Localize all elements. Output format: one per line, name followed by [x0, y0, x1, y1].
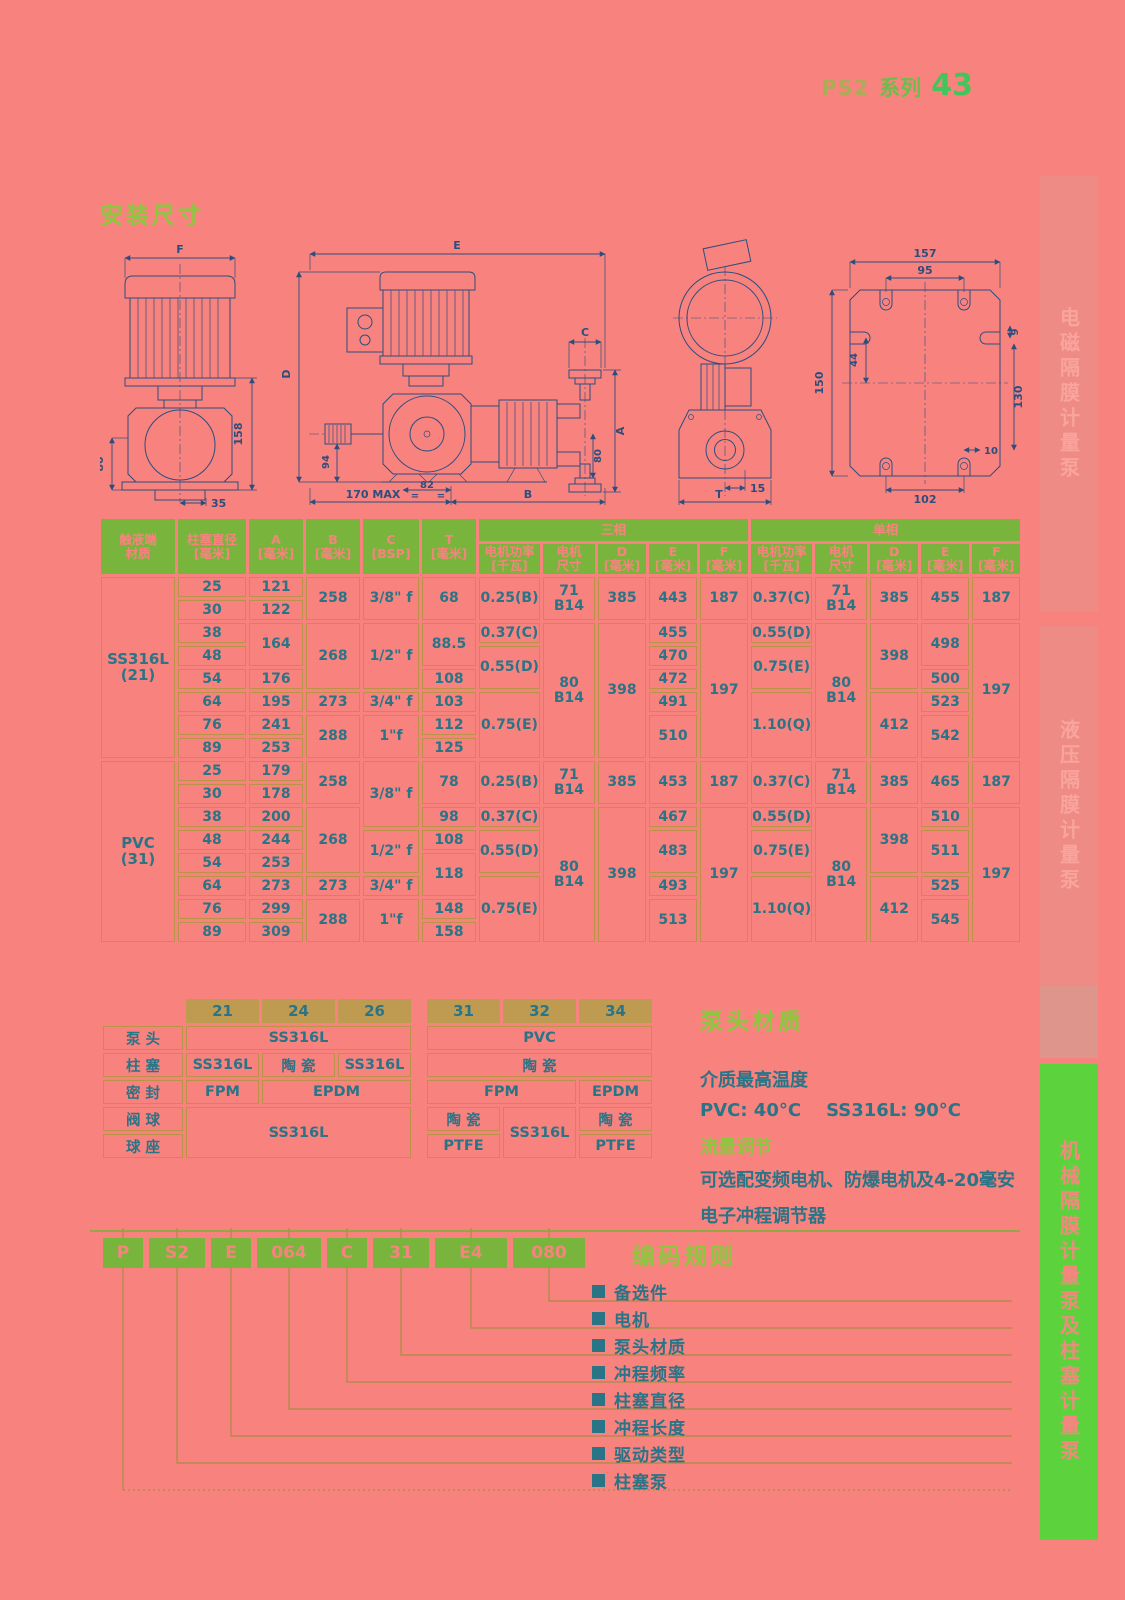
- front-view-drawing: F 158 80 35: [100, 243, 257, 510]
- table-cell: SS316L (21): [101, 577, 175, 758]
- table-cell: 71 B14: [543, 577, 595, 620]
- table-cell: 25: [178, 577, 246, 597]
- table-cell: 0.55(D): [751, 807, 812, 827]
- table-cell: 54: [178, 669, 246, 689]
- table-cell: 511: [921, 830, 969, 873]
- square-bullet-icon: [592, 1393, 605, 1406]
- table-cell: 258: [306, 761, 360, 804]
- table-cell: [414, 1026, 424, 1050]
- table-cell: 195: [249, 692, 303, 712]
- table-cell: 3/8" f: [363, 761, 419, 827]
- table-cell: 64: [178, 692, 246, 712]
- table-cell: 187: [972, 761, 1020, 804]
- table-cell: 273: [306, 876, 360, 896]
- legend-label: 备选件: [614, 1279, 668, 1304]
- table-cell: 455: [921, 577, 969, 620]
- header-cell: 21: [186, 999, 259, 1023]
- table-cell: 80 B14: [543, 807, 595, 942]
- table-cell: 76: [178, 715, 246, 735]
- code-segment: C: [327, 1238, 367, 1268]
- table-cell: 241: [249, 715, 303, 735]
- table-cell: 158: [422, 922, 476, 942]
- series-code: PS2: [821, 76, 869, 100]
- table-cell: FPM: [186, 1080, 259, 1104]
- equal-mark: =: [411, 491, 419, 502]
- header-cell: C [BSP]: [363, 519, 419, 574]
- table-cell: [414, 1053, 424, 1077]
- dim-label: 80: [593, 449, 604, 463]
- dim-label: T: [715, 488, 723, 501]
- table-cell: 472: [649, 669, 697, 689]
- header-cell: 31: [427, 999, 500, 1023]
- legend-label: 驱动类型: [614, 1441, 686, 1466]
- header-cell: 单相: [751, 519, 1020, 541]
- header-cell: 触液端 材质: [101, 519, 175, 574]
- catalog-page: PS2 系列 43 安装尺寸 F 1: [0, 0, 1125, 1600]
- dim-label: 15: [750, 482, 765, 495]
- table-cell: 68: [422, 577, 476, 620]
- header-cell: E [毫米]: [921, 544, 969, 574]
- base-plate-drawing: 157 95 150 44 9 130 10 102: [813, 247, 1025, 506]
- table-cell: 64: [178, 876, 246, 896]
- table-cell: 30: [178, 600, 246, 620]
- table-cell: 108: [422, 669, 476, 689]
- flow-adjust-line1: 可选配变频电机、防爆电机及4-20毫安: [700, 1167, 1040, 1195]
- table-cell: 510: [921, 807, 969, 827]
- sidebar-tab-label: 机械隔膜计量泵及柱塞计量泵: [1055, 1140, 1084, 1465]
- header-cell: 24: [262, 999, 335, 1023]
- square-bullet-icon: [592, 1285, 605, 1298]
- table-cell: 187: [972, 577, 1020, 620]
- coding-legend: 备选件 电机 泵头材质 冲程频率 柱塞直径 冲程长度 驱动类型 柱塞泵: [592, 1278, 686, 1494]
- table-cell: 253: [249, 853, 303, 873]
- table-cell: 253: [249, 738, 303, 758]
- coding-connector-lines: [90, 1225, 1020, 1515]
- table-cell: EPDM: [262, 1080, 411, 1104]
- table-cell: 0.55(D): [751, 623, 812, 643]
- side-view-drawing: E D 94: [280, 239, 627, 505]
- header-cell: [414, 999, 424, 1023]
- coding-rule-title: 编码规则: [632, 1237, 736, 1271]
- table-cell: [414, 1080, 424, 1104]
- dim-label: 158: [232, 423, 245, 446]
- table-cell: 球 座: [103, 1134, 183, 1158]
- table-cell: 1/2" f: [363, 623, 419, 689]
- legend-item: 冲程频率: [592, 1359, 686, 1386]
- header-cell: D [毫米]: [870, 544, 918, 574]
- table-cell: 385: [598, 761, 646, 804]
- table-cell: 288: [306, 899, 360, 942]
- table-cell: 89: [178, 922, 246, 942]
- code-segment: 064: [257, 1238, 321, 1268]
- table-cell: 0.55(D): [479, 646, 540, 689]
- flow-adjust-title: 流量调节: [700, 1133, 1040, 1159]
- table-cell: SS316L: [186, 1053, 259, 1077]
- table-cell: 148: [422, 899, 476, 919]
- header-cell: F [毫米]: [972, 544, 1020, 574]
- table-cell: 1"f: [363, 715, 419, 758]
- table-cell: 1"f: [363, 899, 419, 942]
- square-bullet-icon: [592, 1420, 605, 1433]
- code-boxes: P S2 E 064 C 31 E4 080: [103, 1238, 585, 1268]
- dim-label: 10: [984, 446, 998, 457]
- table-cell: 密 封: [103, 1080, 183, 1104]
- max-temp-title: 介质最高温度: [700, 1066, 1040, 1092]
- table-cell: 122: [249, 600, 303, 620]
- table-cell: 48: [178, 830, 246, 850]
- table-cell: 244: [249, 830, 303, 850]
- table-cell: 48: [178, 646, 246, 666]
- code-segment: 31: [373, 1238, 429, 1268]
- table-cell: 491: [649, 692, 697, 712]
- table-cell: 513: [649, 899, 697, 942]
- table-cell: 179: [249, 761, 303, 781]
- table-cell: 25: [178, 761, 246, 781]
- table-cell: 泵 头: [103, 1026, 183, 1050]
- table-cell: 103: [422, 692, 476, 712]
- page-header: PS2 系列 43: [821, 68, 973, 103]
- dim-label: 82: [420, 480, 434, 491]
- material-table: 212426313234泵 头SS316LPVC柱 塞SS316L陶 瓷SS31…: [100, 996, 655, 1161]
- table-cell: 71 B14: [543, 761, 595, 804]
- table-cell: 0.75(E): [479, 876, 540, 942]
- table-cell: 0.37(C): [751, 577, 812, 620]
- table-cell: 545: [921, 899, 969, 942]
- table-cell: 0.37(C): [479, 807, 540, 827]
- table-cell: 398: [870, 807, 918, 873]
- header-cell: 电机功率 [千瓦]: [479, 544, 540, 574]
- table-cell: 510: [649, 715, 697, 758]
- code-segment: E4: [435, 1238, 507, 1268]
- code-segment: E: [211, 1238, 251, 1268]
- header-cell: [103, 999, 183, 1023]
- table-cell: 525: [921, 876, 969, 896]
- header-cell: 26: [338, 999, 411, 1023]
- table-cell: 385: [598, 577, 646, 620]
- legend-label: 泵头材质: [614, 1333, 686, 1358]
- dim-label: 94: [321, 455, 332, 469]
- installation-drawings: F 158 80 35 E: [100, 238, 1030, 510]
- table-cell: 71 B14: [815, 577, 867, 620]
- sidebar-tab-electromagnetic: 电磁隔膜计量泵: [1040, 176, 1098, 612]
- header-cell: B [毫米]: [306, 519, 360, 574]
- table-cell: 0.25(B): [479, 577, 540, 620]
- table-cell: 0.75(E): [751, 830, 812, 873]
- sidebar-tab-hydraulic: 液压隔膜计量泵: [1040, 626, 1098, 986]
- dim-label: D: [280, 369, 293, 378]
- table-cell: FPM: [427, 1080, 576, 1104]
- legend-label: 柱塞泵: [614, 1468, 668, 1493]
- table-cell: 273: [249, 876, 303, 896]
- header-cell: E [毫米]: [649, 544, 697, 574]
- table-cell: 71 B14: [815, 761, 867, 804]
- table-cell: 385: [870, 577, 918, 620]
- table-cell: 197: [700, 623, 748, 758]
- table-cell: 阀 球: [103, 1107, 183, 1131]
- table-cell: 0.37(C): [479, 623, 540, 643]
- table-cell: 3/8" f: [363, 577, 419, 620]
- page-number: 43: [931, 68, 973, 103]
- legend-label: 冲程长度: [614, 1414, 686, 1439]
- table-cell: 88.5: [422, 623, 476, 666]
- table-cell: 陶 瓷: [262, 1053, 335, 1077]
- table-cell: 299: [249, 899, 303, 919]
- table-cell: [414, 1107, 424, 1158]
- code-segment: P: [103, 1238, 143, 1268]
- sidebar-tab-mechanical: 机械隔膜计量泵及柱塞计量泵: [1040, 1064, 1098, 1540]
- table-cell: 1/2" f: [363, 830, 419, 873]
- table-cell: 1.10(Q): [751, 692, 812, 758]
- table-cell: 0.75(E): [751, 646, 812, 689]
- header-cell: 电机 尺寸: [815, 544, 867, 574]
- equal-mark: =: [437, 491, 445, 502]
- table-cell: 80 B14: [543, 623, 595, 758]
- legend-item: 驱动类型: [592, 1440, 686, 1467]
- table-cell: 陶 瓷: [427, 1107, 500, 1131]
- header-cell: 电机 尺寸: [543, 544, 595, 574]
- table-cell: 80 B14: [815, 623, 867, 758]
- dim-label: C: [581, 326, 589, 339]
- table-cell: 523: [921, 692, 969, 712]
- table-cell: 498: [921, 623, 969, 666]
- dim-label: 44: [849, 353, 860, 367]
- coding-section: P S2 E 064 C 31 E4 080 编码规则 备选件 电机 泵头材质 …: [0, 1225, 1125, 1515]
- table-cell: 125: [422, 738, 476, 758]
- dim-label: B: [524, 488, 532, 501]
- dim-label: 130: [1012, 385, 1025, 408]
- table-cell: 309: [249, 922, 303, 942]
- header-cell: 32: [503, 999, 576, 1023]
- square-bullet-icon: [592, 1366, 605, 1379]
- table-cell: 200: [249, 807, 303, 827]
- header-cell: 三相: [479, 519, 748, 541]
- table-cell: 385: [870, 761, 918, 804]
- header-cell: D [毫米]: [598, 544, 646, 574]
- legend-label: 冲程频率: [614, 1360, 686, 1385]
- table-cell: 0.37(C): [751, 761, 812, 804]
- table-cell: 3/4" f: [363, 692, 419, 712]
- series-word: 系列: [879, 72, 921, 102]
- table-cell: 76: [178, 899, 246, 919]
- table-cell: 467: [649, 807, 697, 827]
- code-segment: 080: [513, 1238, 585, 1268]
- table-cell: 500: [921, 669, 969, 689]
- dim-label: 150: [813, 371, 826, 394]
- dim-label: 80: [100, 456, 106, 472]
- dim-label: F: [176, 243, 184, 256]
- table-cell: 398: [598, 807, 646, 942]
- dim-label: 157: [914, 247, 937, 260]
- table-cell: 187: [700, 761, 748, 804]
- dim-label: 95: [917, 264, 932, 277]
- table-cell: 455: [649, 623, 697, 643]
- table-cell: 38: [178, 623, 246, 643]
- code-segment: S2: [149, 1238, 205, 1268]
- table-cell: EPDM: [579, 1080, 652, 1104]
- dim-label: 170 MAX: [346, 488, 401, 501]
- table-cell: 273: [306, 692, 360, 712]
- info-block: 泵头材质 介质最高温度 PVC: 40°C SS316L: 90°C 流量调节 …: [700, 1002, 1040, 1239]
- table-cell: 398: [870, 623, 918, 689]
- dimension-table: 触液端 材质柱塞直径 [毫米]A [毫米]B [毫米]C [BSP]T [毫米]…: [98, 516, 1023, 945]
- header-cell: F [毫米]: [700, 544, 748, 574]
- table-cell: 3/4" f: [363, 876, 419, 896]
- max-temp-values: PVC: 40°C SS316L: 90°C: [700, 1100, 1040, 1121]
- table-cell: 121: [249, 577, 303, 597]
- sidebar-tab-spacer: [1040, 986, 1098, 1058]
- table-cell: 483: [649, 830, 697, 873]
- dim-label: A: [614, 426, 627, 435]
- table-cell: PTFE: [579, 1134, 652, 1158]
- table-cell: 493: [649, 876, 697, 896]
- table-cell: 178: [249, 784, 303, 804]
- section-title-material: 泵头材质: [700, 1002, 1040, 1036]
- table-cell: 197: [972, 807, 1020, 942]
- table-cell: 98: [422, 807, 476, 827]
- table-cell: 187: [700, 577, 748, 620]
- legend-item: 柱塞泵: [592, 1467, 686, 1494]
- table-cell: SS316L: [186, 1107, 411, 1158]
- table-cell: 288: [306, 715, 360, 758]
- legend-item: 电机: [592, 1305, 686, 1332]
- table-cell: PVC (31): [101, 761, 175, 942]
- table-cell: 38: [178, 807, 246, 827]
- table-cell: 陶 瓷: [579, 1107, 652, 1131]
- table-cell: 1.10(Q): [751, 876, 812, 942]
- table-cell: 30: [178, 784, 246, 804]
- square-bullet-icon: [592, 1339, 605, 1352]
- legend-label: 柱塞直径: [614, 1387, 686, 1412]
- sidebar-tab-label: 液压隔膜计量泵: [1055, 719, 1084, 894]
- legend-item: 泵头材质: [592, 1332, 686, 1359]
- table-cell: 268: [306, 807, 360, 873]
- table-cell: 89: [178, 738, 246, 758]
- square-bullet-icon: [592, 1447, 605, 1460]
- table-cell: 80 B14: [815, 807, 867, 942]
- table-cell: 197: [700, 807, 748, 942]
- table-cell: 443: [649, 577, 697, 620]
- table-cell: SS316L: [186, 1026, 411, 1050]
- legend-item: 备选件: [592, 1278, 686, 1305]
- table-cell: 465: [921, 761, 969, 804]
- square-bullet-icon: [592, 1474, 605, 1487]
- table-cell: PVC: [427, 1026, 652, 1050]
- end-view-drawing: 15 T: [673, 240, 777, 505]
- table-cell: 412: [870, 876, 918, 942]
- table-cell: PTFE: [427, 1134, 500, 1158]
- table-cell: 0.25(B): [479, 761, 540, 804]
- table-cell: 268: [306, 623, 360, 689]
- table-cell: 470: [649, 646, 697, 666]
- header-cell: 柱塞直径 [毫米]: [178, 519, 246, 574]
- sidebar-tab-label: 电磁隔膜计量泵: [1055, 307, 1084, 482]
- dim-label: 9: [1010, 328, 1021, 335]
- table-cell: 164: [249, 623, 303, 666]
- table-cell: 0.75(E): [479, 692, 540, 758]
- table-cell: 453: [649, 761, 697, 804]
- table-cell: 176: [249, 669, 303, 689]
- table-cell: 258: [306, 577, 360, 620]
- table-cell: 陶 瓷: [427, 1053, 652, 1077]
- table-cell: 78: [422, 761, 476, 804]
- dim-label: E: [453, 239, 461, 252]
- header-cell: A [毫米]: [249, 519, 303, 574]
- dim-label: 102: [914, 493, 937, 506]
- table-cell: 118: [422, 853, 476, 896]
- legend-item: 冲程长度: [592, 1413, 686, 1440]
- table-cell: 54: [178, 853, 246, 873]
- table-cell: 398: [598, 623, 646, 758]
- header-cell: 电机功率 [千瓦]: [751, 544, 812, 574]
- table-cell: 542: [921, 715, 969, 758]
- square-bullet-icon: [592, 1312, 605, 1325]
- table-cell: 112: [422, 715, 476, 735]
- section-title-install: 安装尺寸: [100, 196, 204, 230]
- table-cell: 0.55(D): [479, 830, 540, 873]
- dim-label: 35: [211, 497, 226, 510]
- table-cell: 197: [972, 623, 1020, 758]
- table-cell: 412: [870, 692, 918, 758]
- table-cell: 柱 塞: [103, 1053, 183, 1077]
- header-cell: T [毫米]: [422, 519, 476, 574]
- header-cell: 34: [579, 999, 652, 1023]
- legend-item: 柱塞直径: [592, 1386, 686, 1413]
- table-cell: SS316L: [503, 1107, 576, 1158]
- legend-label: 电机: [614, 1306, 650, 1331]
- table-cell: SS316L: [338, 1053, 411, 1077]
- table-cell: 108: [422, 830, 476, 850]
